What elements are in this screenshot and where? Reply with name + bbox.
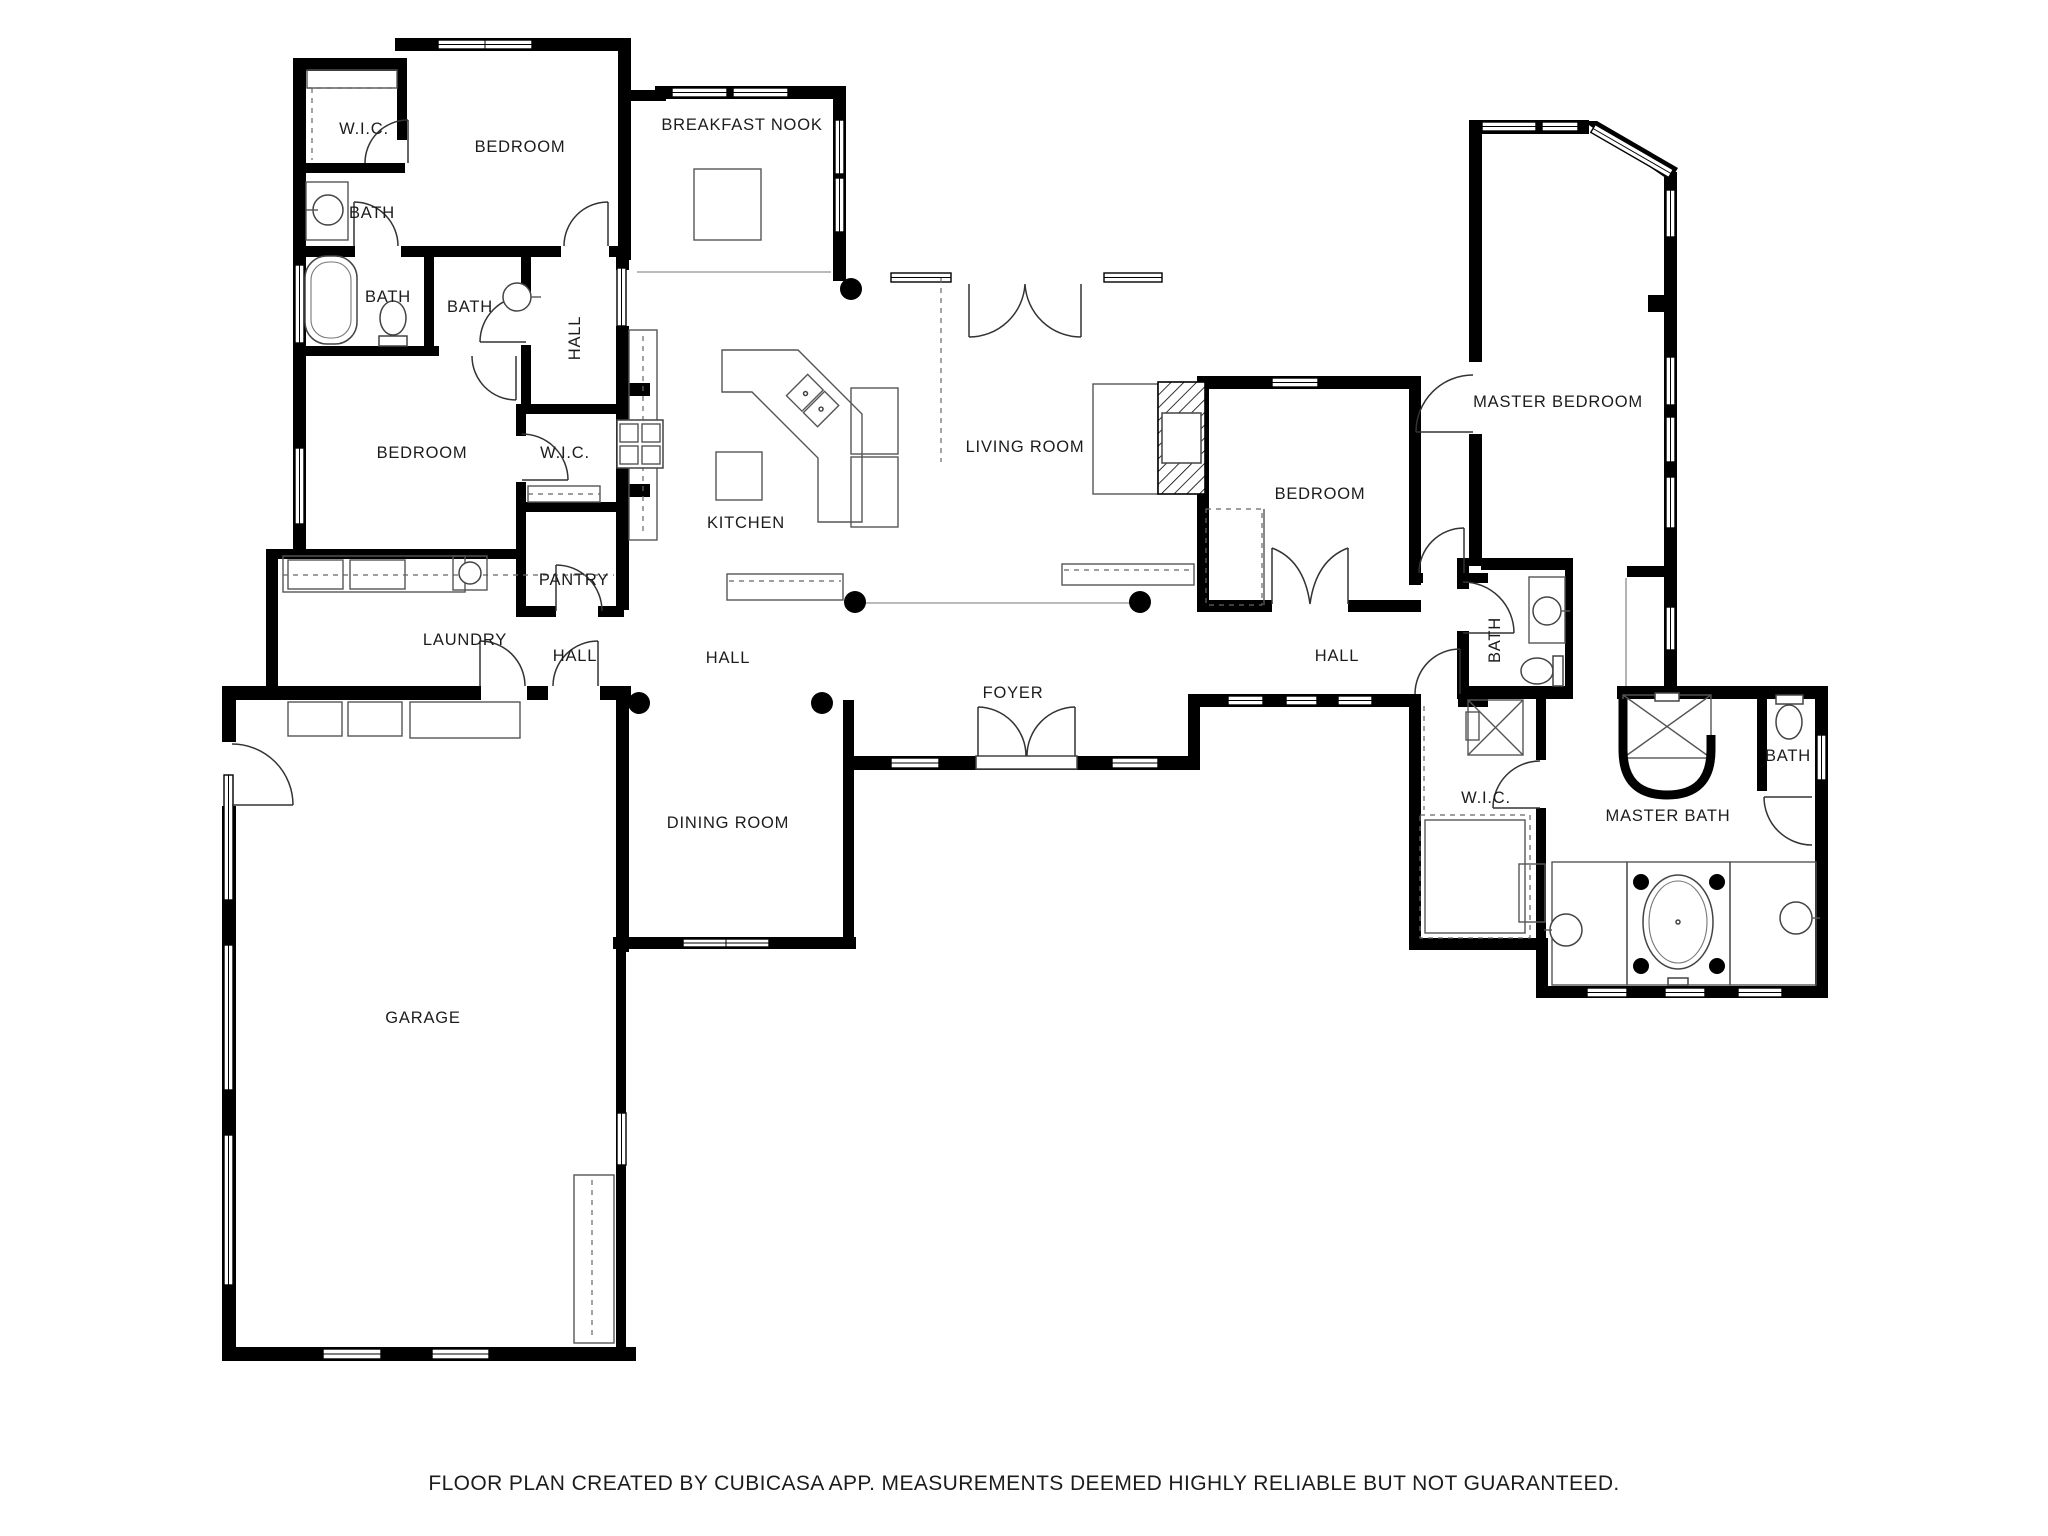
living-patio-double-door [969,284,1081,337]
tub-faucet [1668,978,1688,985]
label-bath-5: BATH [1765,747,1811,765]
label-garage: GARAGE [385,1009,460,1027]
floor-plan-drawing: W.I.C. BEDROOM BREAKFAST NOOK BATH BATH … [0,0,2048,1536]
kitchen-island-2 [716,452,762,500]
label-hall-3: HALL [706,649,750,667]
hall4-door [1415,649,1460,694]
front-double-door [978,707,1075,756]
label-master-bath: MASTER BATH [1606,807,1731,825]
nook-table [694,169,761,240]
bedroom1-door [564,202,608,246]
bedroom2-door [472,356,516,400]
bath5-toilet-tank [1776,695,1803,704]
laundry-counter [283,556,465,592]
bedroom3-closet [1206,509,1262,605]
bath3-sink [503,283,531,311]
label-master-bedroom: MASTER BEDROOM [1473,393,1643,411]
kitchen-lower-counter [727,574,843,600]
wic1-shelf [307,70,397,88]
bath5-door [1764,797,1812,845]
label-pantry: PANTRY [539,571,609,589]
stove [617,420,663,468]
kitchen-island [722,350,862,522]
fixtures [283,70,1820,1343]
label-hall-2: HALL [553,647,597,665]
front-door-slab [976,756,1077,769]
label-wic-3: W.I.C. [1461,789,1511,807]
mb-sink-left [1550,914,1582,946]
mb-sink-right [1780,902,1812,934]
bath2-tub [305,256,357,344]
label-bath-3: BATH [447,298,493,316]
label-bath-2: BATH [365,288,411,306]
label-wic-1: W.I.C. [339,120,389,138]
wic3-closet [1420,815,1530,938]
label-kitchen: KITCHEN [707,514,785,532]
label-bedroom-1: BEDROOM [475,138,566,156]
garage-side-door [232,744,293,805]
kitchen-cabinet-1 [851,388,898,454]
kitchen-cabinet-2 [851,457,898,527]
fireplace-niche [1093,384,1158,494]
label-hall-4: HALL [1315,647,1359,665]
label-hall-1: HALL [566,316,584,360]
living-console [1062,564,1194,585]
bath4-sink [1533,597,1561,625]
shower-faucet [1655,693,1679,701]
label-bedroom-3: BEDROOM [1275,485,1366,503]
label-laundry: LAUNDRY [423,631,507,649]
label-bath-1: BATH [349,204,395,222]
label-living-room: LIVING ROOM [966,438,1085,456]
label-dining-room: DINING ROOM [667,814,789,832]
master-bedroom-door [1416,375,1473,432]
doors [232,120,1812,845]
garage-storage [574,1175,614,1343]
label-foyer: FOYER [983,684,1044,702]
label-wic-2: W.I.C. [540,444,590,462]
disclaimer-text: FLOOR PLAN CREATED BY CUBICASA APP. MEAS… [428,1472,1619,1495]
label-breakfast-nook: BREAKFAST NOOK [661,116,822,134]
bath4-toilet [1521,658,1553,684]
floor-plan-page: W.I.C. BEDROOM BREAKFAST NOOK BATH BATH … [0,0,2048,1536]
master-shower-wall [1623,699,1711,795]
label-bath-4: BATH [1486,617,1504,663]
bath2-toilet [380,301,406,335]
bedroom3-double-door [1272,548,1348,604]
label-bedroom-2: BEDROOM [377,444,468,462]
